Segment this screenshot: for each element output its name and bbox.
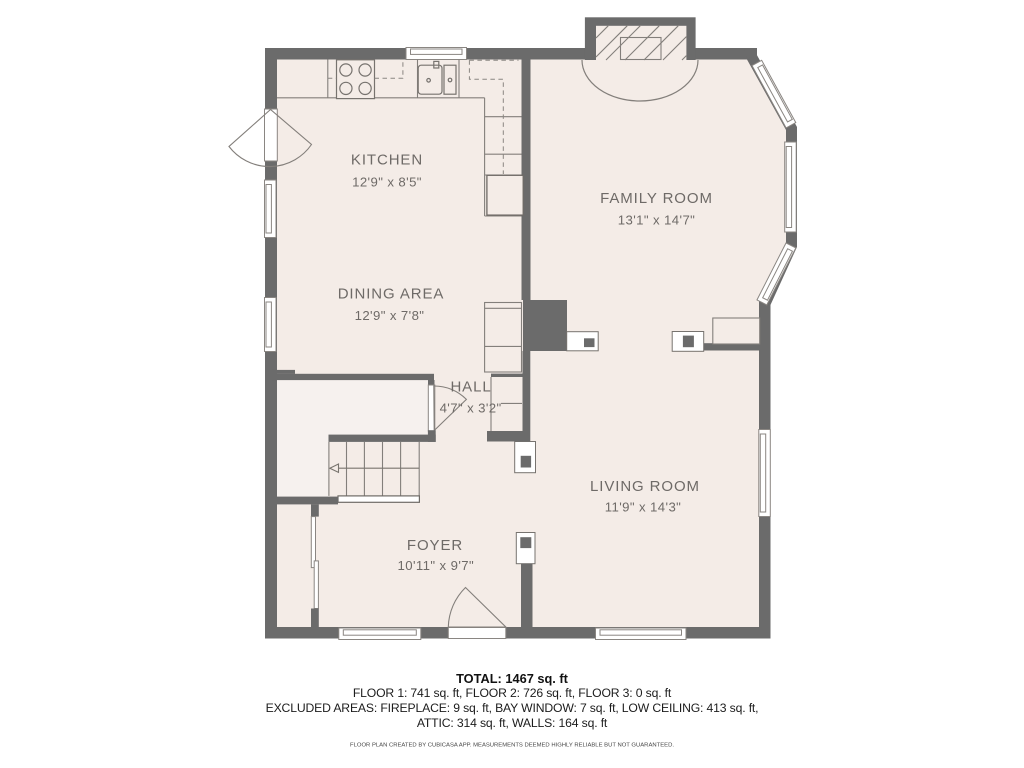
svg-text:12'9" x 7'8": 12'9" x 7'8" (355, 308, 425, 323)
svg-text:TOTAL: 1467 sq. ft: TOTAL: 1467 sq. ft (456, 671, 569, 686)
svg-text:DINING AREA: DINING AREA (338, 286, 445, 303)
svg-text:KITCHEN: KITCHEN (351, 152, 423, 169)
svg-text:LIVING ROOM: LIVING ROOM (590, 478, 700, 495)
svg-text:ATTIC: 314 sq. ft, WALLS: 164: ATTIC: 314 sq. ft, WALLS: 164 sq. ft (417, 716, 608, 730)
svg-text:FOYER: FOYER (407, 537, 463, 554)
svg-text:FLOOR 1: 741 sq. ft, FLOOR 2:: FLOOR 1: 741 sq. ft, FLOOR 2: 726 sq. ft… (353, 686, 672, 700)
svg-text:FAMILY ROOM: FAMILY ROOM (600, 190, 713, 207)
svg-text:HALL: HALL (450, 379, 491, 396)
svg-text:10'11" x 9'7": 10'11" x 9'7" (398, 558, 475, 573)
svg-text:11'9" x 14'3": 11'9" x 14'3" (605, 500, 682, 515)
svg-text:13'1" x 14'7": 13'1" x 14'7" (618, 213, 696, 228)
svg-text:4'7" x 3'2": 4'7" x 3'2" (440, 400, 502, 415)
svg-text:12'9" x 8'5": 12'9" x 8'5" (352, 175, 422, 190)
svg-text:EXCLUDED AREAS: FIREPLACE: 9 s: EXCLUDED AREAS: FIREPLACE: 9 sq. ft, BAY… (266, 701, 759, 715)
svg-text:FLOOR PLAN CREATED BY CUBICASA: FLOOR PLAN CREATED BY CUBICASA APP. MEAS… (350, 743, 674, 749)
